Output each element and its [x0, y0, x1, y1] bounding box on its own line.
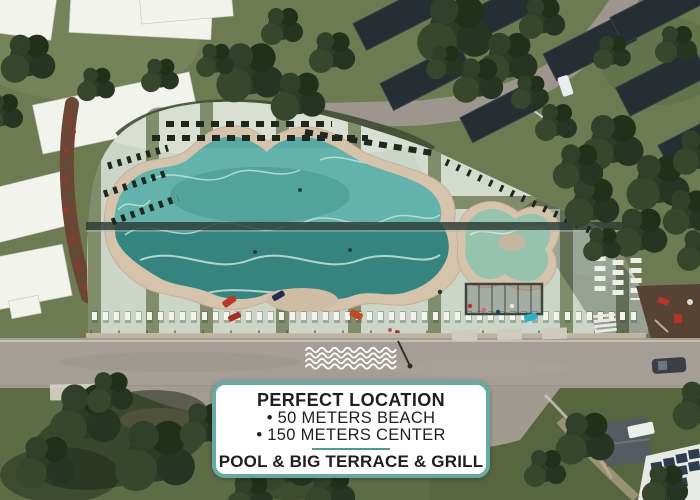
screenshot-root: PERFECT LOCATION • 50 METERS BEACH • 150… [0, 0, 700, 500]
card-line-beach: • 50 METERS BEACH [267, 410, 436, 427]
info-card: PERFECT LOCATION • 50 METERS BEACH • 150… [212, 381, 490, 478]
waves-icon [304, 346, 398, 370]
card-title: PERFECT LOCATION [257, 391, 445, 409]
pergola [466, 284, 542, 314]
kids-pool [457, 202, 559, 291]
card-divider [312, 448, 390, 450]
card-line-center: • 150 METERS CENTER [256, 427, 445, 444]
card-footer: POOL & BIG TERRACE & GRILL [219, 453, 484, 471]
